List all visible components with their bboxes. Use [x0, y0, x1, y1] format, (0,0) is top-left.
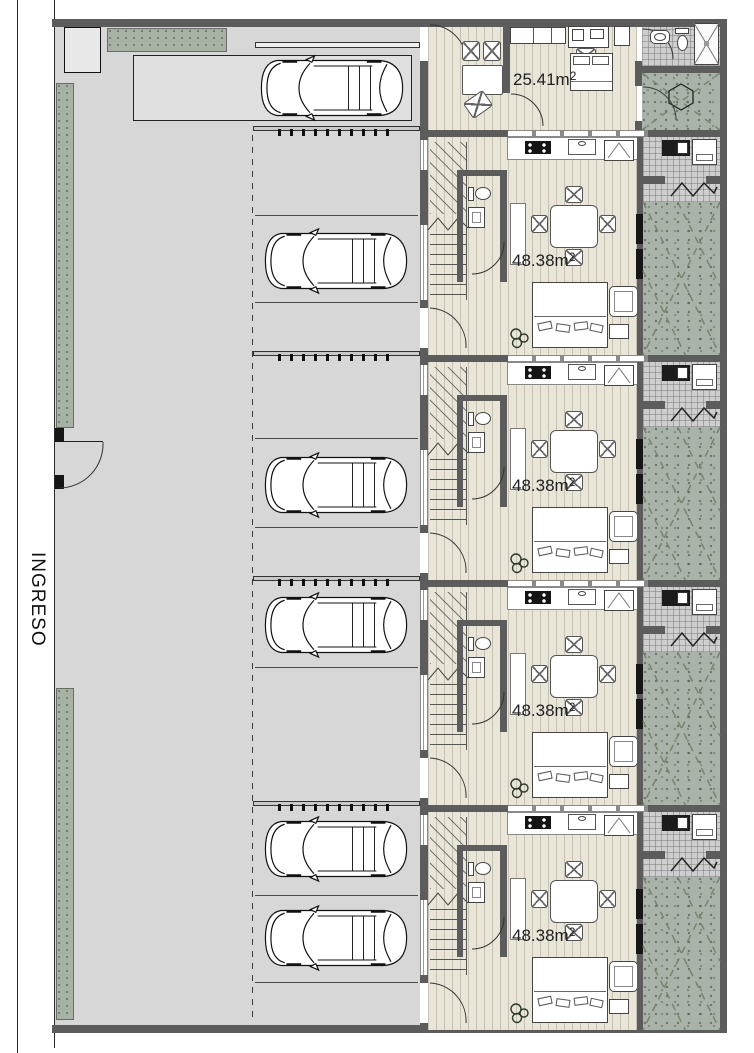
entry-door-swing	[428, 531, 468, 575]
cushion	[574, 321, 589, 331]
window	[420, 675, 428, 750]
fridge-icon	[604, 815, 634, 836]
car-icon	[256, 452, 416, 518]
toilet-tank	[468, 862, 474, 876]
toilet-tank	[468, 412, 474, 426]
chair	[565, 186, 583, 203]
window	[420, 450, 428, 525]
wc-door-swing	[470, 915, 506, 951]
stair-rail	[466, 817, 467, 975]
bay-line	[255, 527, 418, 528]
desk-item	[572, 29, 584, 41]
chair	[565, 411, 583, 428]
armchair-seat	[614, 516, 633, 537]
dining-table	[550, 655, 598, 698]
toilet-icon	[475, 412, 491, 425]
stair-rail	[466, 367, 467, 525]
chair	[531, 665, 548, 683]
washer-door	[696, 379, 713, 386]
cushion	[574, 546, 589, 556]
washer-door	[696, 604, 713, 611]
door-swing	[642, 86, 677, 121]
entry-door-swing	[428, 981, 468, 1025]
plant-icon	[508, 551, 532, 575]
side-table	[609, 324, 629, 339]
entry-door-swing	[428, 306, 468, 350]
fridge-icon	[604, 590, 634, 611]
side-table	[609, 999, 629, 1014]
window	[420, 225, 428, 300]
kitchen-window	[508, 355, 648, 362]
stove-icon	[525, 816, 551, 829]
area-label: 25.41m2	[513, 69, 576, 90]
plant-icon	[508, 1001, 532, 1025]
laundry-sink-basin	[677, 817, 688, 829]
washer-icon	[692, 364, 717, 390]
bay-line	[255, 667, 418, 668]
armchair-seat	[614, 966, 633, 987]
car-icon	[256, 816, 416, 882]
planter-strip-left-upper	[56, 83, 74, 428]
toilet-icon	[475, 637, 491, 650]
area-label: 48.38m2	[512, 700, 575, 721]
wc-wall	[457, 170, 463, 282]
zigzag-icon	[670, 855, 718, 873]
stair-rail	[466, 142, 467, 300]
duplex-unit: 48.38m2	[420, 355, 720, 580]
property-line-outer	[17, 0, 18, 1053]
side-table	[609, 549, 629, 564]
car-icon	[256, 592, 416, 658]
cushion	[574, 996, 589, 1006]
washer-icon	[692, 139, 717, 165]
planter-strip-top	[107, 28, 227, 52]
car-icon	[256, 905, 416, 971]
dining-table	[550, 205, 598, 248]
wardrobe	[510, 27, 566, 44]
chair	[599, 890, 616, 908]
fridge-icon	[604, 140, 634, 161]
wc-wall	[457, 845, 463, 957]
washer-icon	[692, 814, 717, 840]
washer-door	[696, 829, 713, 836]
patio-diagonals	[643, 427, 720, 580]
duplex-unit: 48.38m2	[420, 130, 720, 355]
duplex-unit: 48.38m2	[420, 805, 720, 1030]
toilet-icon	[677, 35, 688, 51]
area-label: 48.38m2	[512, 925, 575, 946]
basin-inner	[472, 437, 481, 448]
armchair-seat	[614, 291, 633, 312]
front-wall-unit1	[255, 42, 420, 48]
shower-x	[694, 23, 719, 65]
floor-plan-canvas: INGRESO	[0, 0, 754, 1053]
wall-right	[719, 19, 727, 1033]
side-table	[609, 774, 629, 789]
kitchen-window	[508, 805, 648, 812]
armchair-seat	[614, 741, 633, 762]
interior-wall	[503, 27, 510, 93]
basin-inner	[472, 212, 481, 223]
bay-line	[255, 438, 418, 439]
faucet	[578, 591, 586, 596]
bay-line	[255, 982, 418, 983]
window	[420, 900, 428, 975]
plant-icon	[508, 326, 532, 350]
dining-table	[550, 430, 598, 473]
unit-1-studio: 25.41m2	[420, 19, 720, 130]
toilet-icon	[475, 862, 491, 875]
chair	[565, 861, 583, 878]
pillow	[573, 56, 590, 65]
fridge-icon	[604, 365, 634, 386]
window	[420, 590, 428, 620]
laundry-wall-stub	[643, 401, 665, 409]
car-icon	[252, 55, 412, 121]
toilet-tank	[468, 187, 474, 201]
wc-door-swing	[470, 240, 506, 276]
laundry-wall-stub	[643, 626, 665, 634]
zigzag-icon	[670, 180, 718, 198]
chair	[483, 41, 501, 61]
wc-door-swing	[470, 465, 506, 501]
kitchen-window	[508, 130, 648, 137]
desk-item	[590, 29, 604, 39]
bay-line	[255, 215, 418, 216]
planter-strip-left-lower	[56, 688, 74, 1020]
faucet	[578, 816, 586, 821]
wc-wall	[457, 620, 463, 732]
bay-line	[255, 895, 418, 896]
area-label: 48.38m2	[512, 250, 575, 271]
laundry-wall-stub	[643, 176, 665, 184]
zigzag-icon	[670, 405, 718, 423]
car-icon	[256, 228, 416, 294]
duplex-unit: 48.38m2	[420, 580, 720, 805]
chair	[565, 636, 583, 653]
wc-door-swing	[470, 690, 506, 726]
patio-diagonals	[643, 202, 720, 355]
door-swing	[510, 93, 544, 127]
stove-icon	[525, 141, 551, 154]
patio-diagonals	[643, 652, 720, 805]
laundry-sink-basin	[677, 142, 688, 154]
stove-icon	[525, 591, 551, 604]
cushion	[574, 771, 589, 781]
washer-icon	[692, 589, 717, 615]
area-label: 48.38m2	[512, 475, 575, 496]
toilet-icon	[475, 187, 491, 200]
chair	[462, 41, 480, 61]
chair	[599, 215, 616, 233]
laundry-wall-stub	[643, 851, 665, 859]
wc-wall	[457, 395, 463, 507]
chair	[531, 440, 548, 458]
entrance-label: INGRESO	[26, 552, 48, 647]
laundry-sink-basin	[677, 367, 688, 379]
blanket-line	[571, 81, 612, 82]
pillow	[592, 56, 609, 65]
stove-icon	[525, 366, 551, 379]
toilet-tank	[468, 637, 474, 651]
laundry-sink-basin	[677, 592, 688, 604]
basin-bowl	[654, 33, 666, 41]
bay-line	[255, 302, 418, 303]
plant-icon	[508, 776, 532, 800]
kitchen-window	[508, 580, 648, 587]
zigzag-icon	[670, 630, 718, 648]
faucet	[578, 366, 586, 371]
gate-swing-arc	[56, 438, 106, 492]
stair-rail	[466, 592, 467, 750]
basin-inner	[472, 662, 481, 673]
window	[420, 815, 428, 845]
washer-door	[696, 154, 713, 161]
patio-diagonals	[643, 877, 720, 1030]
chair	[531, 890, 548, 908]
window	[420, 365, 428, 395]
faucet	[578, 141, 586, 146]
bath-patio-divider	[642, 66, 720, 73]
toilet-tank	[675, 28, 689, 34]
nightstand	[614, 26, 630, 46]
basin-inner	[472, 887, 481, 898]
chair	[599, 440, 616, 458]
utility-box	[64, 27, 101, 73]
window	[420, 140, 428, 170]
chair	[531, 215, 548, 233]
chair	[599, 665, 616, 683]
entry-door-swing	[428, 756, 468, 800]
dining-table	[550, 880, 598, 923]
